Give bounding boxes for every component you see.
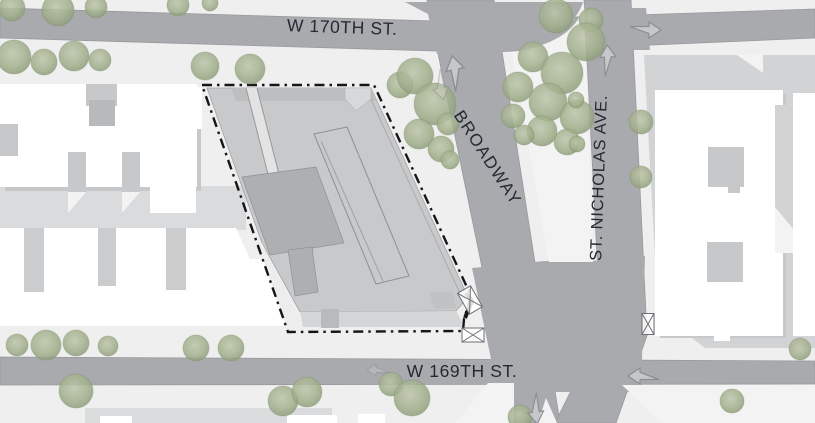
site-plan-svg: W 170TH ST. BROADWAY ST. NICHOLAS AVE. W… xyxy=(0,0,815,423)
tree-icon xyxy=(441,151,459,169)
tree-icon xyxy=(501,104,525,128)
south-row-inset-b xyxy=(98,228,116,286)
tree-icon xyxy=(568,92,584,108)
tree-icon xyxy=(89,49,111,71)
tree-icon xyxy=(503,72,533,102)
tree-icon xyxy=(720,389,744,413)
north-row-core xyxy=(89,100,115,126)
construction-marker-b xyxy=(462,328,484,342)
south-building-c xyxy=(358,414,385,423)
north-row-east-wing xyxy=(150,187,196,213)
tree-icon xyxy=(63,330,89,356)
tree-icon xyxy=(218,335,244,361)
site-southeast-step xyxy=(430,291,456,309)
tree-icon xyxy=(85,0,107,18)
street-label-w169th: W 169TH ST. xyxy=(407,361,518,381)
tree-icon xyxy=(514,125,534,145)
site-south-tab xyxy=(321,309,339,328)
tree-icon xyxy=(98,336,118,356)
south-row-wing-a xyxy=(68,152,86,192)
tree-icon xyxy=(394,380,430,416)
tree-icon xyxy=(59,374,93,408)
tree-icon xyxy=(539,0,573,33)
tree-icon xyxy=(31,330,61,360)
tree-icon xyxy=(202,0,218,11)
tree-icon xyxy=(629,110,653,134)
tree-icon xyxy=(31,49,57,75)
east-courtyard-lower xyxy=(707,242,743,282)
south-row-inset-c xyxy=(166,228,186,290)
tree-icon xyxy=(789,338,811,360)
tree-icon xyxy=(191,52,219,80)
construction-marker-c xyxy=(642,314,654,335)
site-plan-map: W 170TH ST. BROADWAY ST. NICHOLAS AVE. W… xyxy=(0,0,815,423)
tree-icon xyxy=(59,41,89,71)
tree-icon xyxy=(6,334,28,356)
tree-icon xyxy=(0,40,31,74)
tree-icon xyxy=(235,54,265,84)
site-west-neighbor xyxy=(190,87,202,129)
south-building-b xyxy=(287,415,337,423)
street-label-w170th: W 170TH ST. xyxy=(287,15,398,39)
east-courtyard-tab xyxy=(728,185,740,193)
south-building-a xyxy=(100,416,132,423)
east-courtyard-upper xyxy=(708,147,744,187)
tree-icon xyxy=(42,0,74,26)
east-building-tab xyxy=(714,336,730,341)
east-main-building xyxy=(655,90,783,336)
south-row-wing-b xyxy=(122,152,140,192)
tree-icon xyxy=(569,136,585,152)
north-row-left-wing xyxy=(0,124,18,156)
tree-icon xyxy=(630,166,652,188)
tree-icon xyxy=(292,377,322,407)
south-row-inset-a xyxy=(24,228,44,292)
tree-icon xyxy=(183,335,209,361)
east-gap-strip xyxy=(775,105,793,223)
east-corner-building xyxy=(793,93,815,336)
